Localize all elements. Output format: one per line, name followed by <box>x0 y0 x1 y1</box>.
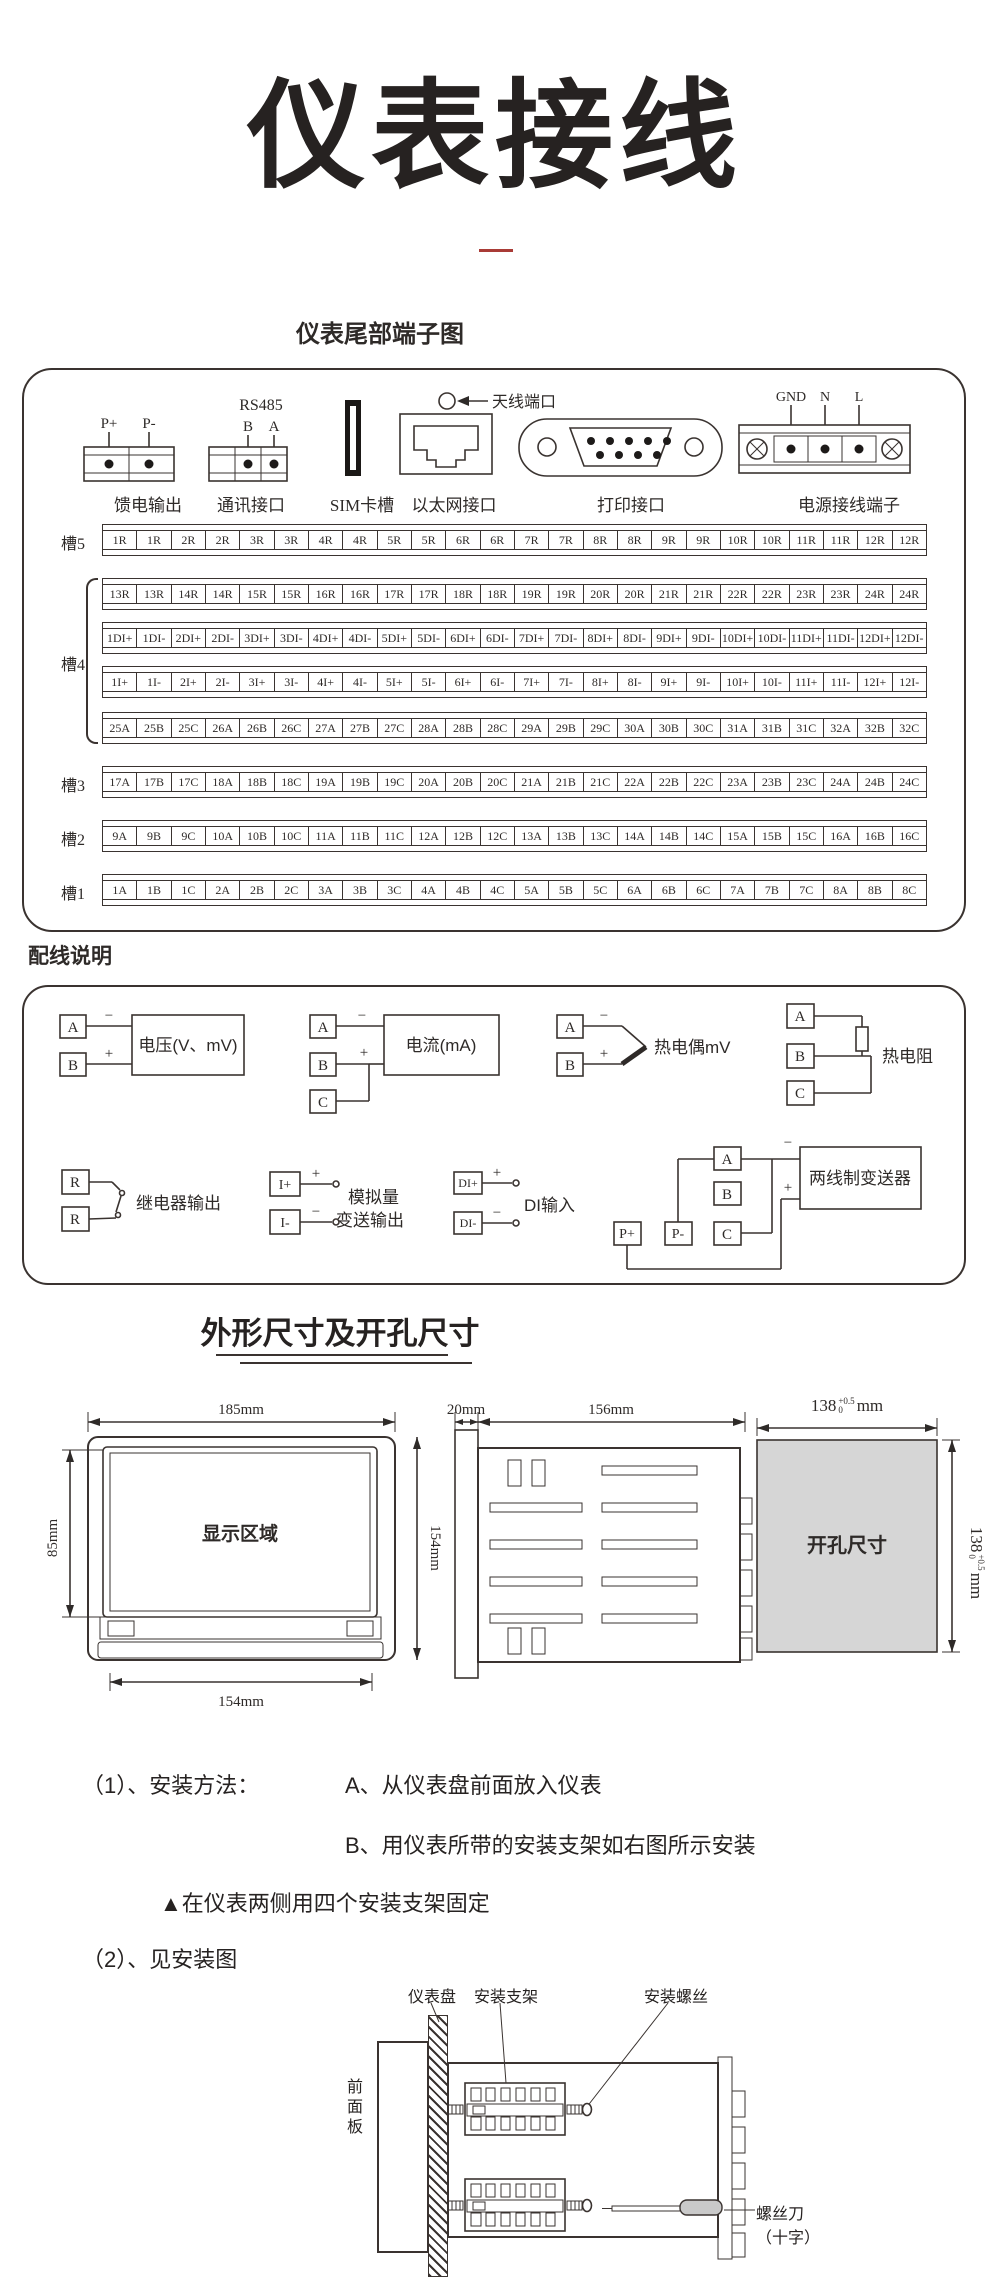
terminal-cell: 6I- <box>481 673 515 691</box>
terminal-cell: 19C <box>378 773 412 791</box>
terminal-strip: 13R13R14R14R15R15R16R16R17R17R18R18R19R1… <box>102 578 927 610</box>
cutout-label: 开孔尺寸 <box>807 1534 887 1557</box>
cutout-height-dim: 138+0.50mm <box>966 1508 986 1618</box>
terminal-r: R <box>70 1212 80 1228</box>
terminal-p-minus: P- <box>672 1227 685 1242</box>
comm-connector: RS485 B A <box>209 397 287 481</box>
terminal-cell: 4I- <box>343 673 377 691</box>
terminal-cell: 14C <box>687 827 721 845</box>
terminal-cell: 1A <box>103 881 137 899</box>
terminal-cell: 4R <box>343 531 377 549</box>
polarity-minus: − <box>312 1204 320 1220</box>
install-note: ▲在仪表两侧用四个安装支架固定 <box>160 1886 490 1918</box>
terminal-cell: 8R <box>618 531 652 549</box>
terminal-cell: 9R <box>687 531 721 549</box>
terminal-r: R <box>70 1175 80 1191</box>
terminal-cell: 31B <box>755 719 789 737</box>
wiring-analog-out: I+ I- + − 模拟量 变送输出 <box>270 1166 404 1234</box>
terminal-cell: 27B <box>343 719 377 737</box>
terminal-cell: 23R <box>824 585 858 603</box>
terminal-cell: 3DI- <box>275 629 309 647</box>
body-back-edge <box>718 2057 732 2259</box>
terminal-cell: 4DI- <box>343 629 377 647</box>
terminal-cell: 3I+ <box>240 673 274 691</box>
terminal-cell: 17B <box>137 773 171 791</box>
terminal-cell: 26C <box>275 719 309 737</box>
terminal-cell: 19R <box>515 585 549 603</box>
terminal-cell: 29C <box>584 719 618 737</box>
front-width-dim: 185mm <box>218 1402 264 1418</box>
side-depth-dim: 20mm <box>447 1402 486 1418</box>
terminal-cell: 6DI+ <box>446 629 480 647</box>
terminal-strip: 25A25B25C26A26B26C27A27B27C28A28B28C29A2… <box>102 712 927 744</box>
thermocouple-label: 热电偶mV <box>654 1038 731 1057</box>
power-pin-label: N <box>820 390 830 405</box>
wiring-voltage: A B − + 电压(V、mV) <box>60 1008 244 1076</box>
terminal-a: A <box>318 1020 329 1036</box>
terminal-cell: 3DI+ <box>240 629 274 647</box>
terminal-cell: 9DI+ <box>652 629 686 647</box>
terminal-cell: 24A <box>824 773 858 791</box>
terminal-cell: 2C <box>275 881 309 899</box>
install-drawing <box>300 1975 990 2281</box>
terminal-cell: 2A <box>206 881 240 899</box>
feed-output-connector: P+ P- <box>84 416 174 481</box>
terminal-cell: 1R <box>137 531 171 549</box>
terminal-cell: 9A <box>103 827 137 845</box>
terminal-cell: 11R <box>824 531 858 549</box>
polarity-minus: − <box>493 1205 501 1221</box>
terminal-c: C <box>318 1095 328 1111</box>
terminal-cell: 5A <box>515 881 549 899</box>
cutout-unit: mm <box>857 1396 883 1416</box>
terminal-cell: 15R <box>275 585 309 603</box>
terminal-cell: 12B <box>446 827 480 845</box>
terminal-cell: 5DI+ <box>378 629 412 647</box>
terminal-strip: 17A17B17C18A18B18C19A19B19C20A20B20C21A2… <box>102 766 927 798</box>
terminal-cell: 15B <box>755 827 789 845</box>
screwdriver-icon <box>602 2200 722 2215</box>
terminal-cell: 7A <box>721 881 755 899</box>
terminal-cell: 26B <box>240 719 274 737</box>
slot-label: 槽5 <box>50 530 96 554</box>
polarity-plus: + <box>360 1045 368 1061</box>
ethernet-port-label: 以太网接口 <box>394 491 514 513</box>
terminal-cell: 20R <box>618 585 652 603</box>
feed-pin-label: P+ <box>101 416 118 432</box>
terminal-cell: 14B <box>652 827 686 845</box>
terminal-cell: 22R <box>721 585 755 603</box>
terminal-cell: 3B <box>343 881 377 899</box>
polarity-minus: − <box>358 1008 366 1024</box>
terminal-cell: 4C <box>481 881 515 899</box>
install-step1-a: A、从仪表盘前面放入仪表 <box>345 1768 602 1800</box>
terminal-a: A <box>68 1020 79 1036</box>
terminal-cell: 21R <box>652 585 686 603</box>
cutout-width-dim: 138+0.50mm <box>790 1396 904 1416</box>
cutout-value: 138 <box>966 1527 986 1553</box>
terminal-cell: 4R <box>309 531 343 549</box>
terminal-cell: 4A <box>412 881 446 899</box>
mounting-bracket-bottom <box>448 2179 592 2231</box>
terminal-cell: 10I- <box>755 673 789 691</box>
terminal-p-plus: P+ <box>619 1227 635 1242</box>
sim-slot-icon <box>345 400 361 476</box>
terminal-cell: 4B <box>446 881 480 899</box>
terminal-cell: 17R <box>412 585 446 603</box>
polarity-minus: − <box>784 1135 792 1151</box>
terminal-cell: 12DI+ <box>858 629 892 647</box>
terminal-cell: 24B <box>858 773 892 791</box>
antenna-port-icon: 天线端口 <box>439 393 556 411</box>
terminal-cell: 5DI- <box>412 629 446 647</box>
manual-page: 仪表接线 仪表尾部端子图 P+ P- RS485 B A <box>0 0 990 2281</box>
terminal-cell: 28C <box>481 719 515 737</box>
polarity-minus: − <box>600 1008 608 1024</box>
rs485-label: RS485 <box>239 397 283 414</box>
printer-port-label: 打印接口 <box>571 491 691 513</box>
terminal-cell: 16R <box>309 585 343 603</box>
terminal-cell: 11B <box>343 827 377 845</box>
terminal-cell: 20C <box>481 773 515 791</box>
terminal-cell: 12R <box>858 531 892 549</box>
terminal-cell: 7DI+ <box>515 629 549 647</box>
slot-group-bracket <box>86 578 98 744</box>
terminal-cell: 32B <box>858 719 892 737</box>
wiring-thermocouple: A B − + 热电偶mV <box>557 1008 731 1076</box>
terminal-cell: 26A <box>206 719 240 737</box>
terminal-cell: 3R <box>275 531 309 549</box>
terminal-cell: 13R <box>137 585 171 603</box>
terminal-strip: 1DI+1DI-2DI+2DI-3DI+3DI-4DI+4DI-5DI+5DI-… <box>102 622 927 654</box>
wiring-rtd: A B C 热电阻 <box>787 1004 933 1105</box>
di-label: DI输入 <box>524 1196 575 1215</box>
power-pin-label: L <box>855 390 864 405</box>
terminal-cell: 18C <box>275 773 309 791</box>
terminal-b: B <box>722 1187 732 1203</box>
terminal-cell: 7R <box>515 531 549 549</box>
terminal-cell: 1R <box>103 531 137 549</box>
terminal-strip: 1A1B1C2A2B2C3A3B3C4A4B4C5A5B5C6A6B6C7A7B… <box>102 874 927 906</box>
terminal-cell: 27A <box>309 719 343 737</box>
terminal-cell: 32C <box>893 719 926 737</box>
transmitter-label: 两线制变送器 <box>809 1169 911 1188</box>
display-height-dim: 85mm <box>45 1519 61 1558</box>
antenna-label: 天线端口 <box>492 393 556 411</box>
terminal-cell: 7R <box>549 531 583 549</box>
terminal-cell: 32A <box>824 719 858 737</box>
terminal-cell: 9R <box>652 531 686 549</box>
terminal-cell: 24C <box>893 773 926 791</box>
terminal-cell: 18R <box>446 585 480 603</box>
terminal-cell: 7C <box>790 881 824 899</box>
terminal-cell: 13R <box>103 585 137 603</box>
terminal-cell: 22R <box>755 585 789 603</box>
terminal-cell: 9I- <box>687 673 721 691</box>
terminal-strip: 1I+1I-2I+2I-3I+3I-4I+4I-5I+5I-6I+6I-7I+7… <box>102 666 927 698</box>
printer-port-icon <box>519 419 722 476</box>
polarity-plus: + <box>105 1046 113 1062</box>
cutout-tol-plus: +0.5 <box>976 1554 985 1570</box>
terminal-cell: 6R <box>446 531 480 549</box>
slot-label: 槽3 <box>50 772 96 796</box>
terminal-cell: 18B <box>240 773 274 791</box>
terminal-cell: 7B <box>755 881 789 899</box>
current-label: 电流(mA) <box>406 1036 477 1055</box>
polarity-plus: + <box>600 1046 608 1062</box>
cutout-tol-minus: 0 <box>967 1554 976 1570</box>
terminal-cell: 2DI- <box>206 629 240 647</box>
feed-pin-label: P- <box>142 416 155 432</box>
voltage-label: 电压(V、mV) <box>138 1036 237 1055</box>
terminal-cell: 9B <box>137 827 171 845</box>
terminal-cell: 2I- <box>206 673 240 691</box>
terminal-strip: 9A9B9C10A10B10C11A11B11C12A12B12C13A13B1… <box>102 820 927 852</box>
terminal-cell: 3I- <box>275 673 309 691</box>
terminal-cell: 5B <box>549 881 583 899</box>
front-view: 185mm 显示区域 85mm 154mm 154mm <box>45 1402 443 1710</box>
terminal-box: P+ P- RS485 B A <box>22 368 966 932</box>
terminal-cell: 6DI- <box>481 629 515 647</box>
terminal-cell: 6I+ <box>446 673 480 691</box>
terminal-cell: 17C <box>172 773 206 791</box>
terminal-cell: 10C <box>275 827 309 845</box>
terminal-cell: 17A <box>103 773 137 791</box>
terminal-cell: 21C <box>584 773 618 791</box>
side-body-depth-dim: 156mm <box>588 1402 634 1418</box>
terminal-cell: 31A <box>721 719 755 737</box>
terminal-cell: 20A <box>412 773 446 791</box>
wiring-section-title: 配线说明 <box>28 940 112 970</box>
terminal-cell: 4DI+ <box>309 629 343 647</box>
polarity-plus: + <box>784 1180 792 1196</box>
rtd-label: 热电阻 <box>882 1047 933 1066</box>
power-pin-label: GND <box>776 390 806 405</box>
terminal-c: C <box>795 1086 805 1102</box>
wiring-diagrams: A B − + 电压(V、mV) A B C − + 电流(mA) <box>24 987 968 1285</box>
terminal-cell: 12R <box>893 531 926 549</box>
bracket-leader <box>500 2003 506 2083</box>
terminal-cell: 11C <box>378 827 412 845</box>
mounting-bracket-top <box>448 2083 592 2135</box>
terminal-cell: 7DI- <box>549 629 583 647</box>
terminal-cell: 11A <box>309 827 343 845</box>
terminal-cell: 21A <box>515 773 549 791</box>
power-terminal-connector: GND N L <box>739 390 910 473</box>
panel-leader <box>431 2003 439 2022</box>
terminal-cell: 15R <box>240 585 274 603</box>
terminal-cell: 6B <box>652 881 686 899</box>
terminal-cell: 21B <box>549 773 583 791</box>
terminal-cell: 12C <box>481 827 515 845</box>
terminal-cell: 2DI+ <box>172 629 206 647</box>
terminal-cell: 11I- <box>824 673 858 691</box>
relay-label: 继电器输出 <box>136 1194 221 1213</box>
terminal-cell: 23B <box>755 773 789 791</box>
terminal-a: A <box>565 1020 576 1036</box>
terminal-b: B <box>68 1058 78 1074</box>
terminal-cell: 5I+ <box>378 673 412 691</box>
terminal-cell: 1B <box>137 881 171 899</box>
mounting-screw-icon <box>583 2104 592 2116</box>
terminal-cell: 24R <box>858 585 892 603</box>
terminal-cell: 23A <box>721 773 755 791</box>
terminal-cell: 12I- <box>893 673 926 691</box>
install-step1-b: B、用仪表所带的安装支架如右图所示安装 <box>345 1828 756 1860</box>
terminal-cell: 1I+ <box>103 673 137 691</box>
terminal-cell: 22C <box>687 773 721 791</box>
cutout-tol-minus: 0 <box>838 1406 854 1415</box>
side-view: 20mm 156mm <box>447 1402 752 1678</box>
terminal-cell: 5I- <box>412 673 446 691</box>
terminal-cell: 8DI+ <box>584 629 618 647</box>
terminal-cell: 16C <box>893 827 926 845</box>
polarity-minus: − <box>105 1008 113 1024</box>
terminal-cell: 3A <box>309 881 343 899</box>
terminal-cell: 8R <box>584 531 618 549</box>
terminal-cell: 14R <box>206 585 240 603</box>
terminal-cell: 10A <box>206 827 240 845</box>
terminal-cell: 9I+ <box>652 673 686 691</box>
terminal-cell: 11I+ <box>790 673 824 691</box>
feed-output-label: 馈电输出 <box>88 491 208 513</box>
terminal-cell: 30B <box>652 719 686 737</box>
terminal-diagram-subtitle: 仪表尾部端子图 <box>0 314 760 349</box>
front-bottom-width-dim: 154mm <box>218 1694 264 1710</box>
terminal-cell: 7I+ <box>515 673 549 691</box>
terminal-cell: 29A <box>515 719 549 737</box>
terminal-cell: 2R <box>206 531 240 549</box>
front-height-dim: 154mm <box>427 1525 443 1571</box>
title-underline <box>240 1362 472 1364</box>
terminal-cell: 17R <box>378 585 412 603</box>
terminal-cell: 1I- <box>137 673 171 691</box>
terminal-cell: 25C <box>172 719 206 737</box>
terminal-cell: 1DI- <box>137 629 171 647</box>
terminal-cell: 8I- <box>618 673 652 691</box>
cutout-view: 开孔尺寸 <box>757 1418 960 1652</box>
dimension-drawings: 185mm 显示区域 85mm 154mm 154mm 20mm <box>0 1390 990 1735</box>
terminal-cell: 18A <box>206 773 240 791</box>
terminal-cell: 30C <box>687 719 721 737</box>
terminal-cell: 19R <box>549 585 583 603</box>
terminal-strip: 1R1R2R2R3R3R4R4R5R5R6R6R7R7R8R8R9R9R10R1… <box>102 524 927 556</box>
terminal-cell: 25B <box>137 719 171 737</box>
wiring-di: DI+ DI- + − DI输入 <box>454 1165 575 1234</box>
terminal-cell: 19B <box>343 773 377 791</box>
analog-out-label1: 模拟量 <box>348 1188 399 1207</box>
comm-port-label: 通讯接口 <box>191 491 311 513</box>
terminal-cell: 14R <box>172 585 206 603</box>
terminal-cell: 2B <box>240 881 274 899</box>
terminal-cell: 23C <box>790 773 824 791</box>
terminal-cell: 6C <box>687 881 721 899</box>
terminal-cell: 24R <box>893 585 926 603</box>
analog-out-label2: 变送输出 <box>336 1211 404 1230</box>
wiring-transmitter: P+ P- A B C − + 两线制变送器 <box>614 1135 921 1269</box>
terminal-cell: 11R <box>790 531 824 549</box>
cutout-value: 138 <box>811 1396 837 1416</box>
terminal-cell: 15A <box>721 827 755 845</box>
terminal-cell: 11DI- <box>824 629 858 647</box>
terminal-cell: 20R <box>584 585 618 603</box>
terminal-cell: 20B <box>446 773 480 791</box>
terminal-cell: 13C <box>584 827 618 845</box>
terminal-i-minus: I- <box>280 1216 290 1231</box>
terminal-cell: 28B <box>446 719 480 737</box>
terminal-cell: 9DI- <box>687 629 721 647</box>
terminal-cell: 2R <box>172 531 206 549</box>
install-step1-prefix: （1）、安装方法： <box>82 1768 259 1800</box>
terminal-cell: 12DI- <box>893 629 926 647</box>
terminal-cell: 15C <box>790 827 824 845</box>
terminal-c: C <box>722 1227 732 1243</box>
cutout-unit: mm <box>966 1573 986 1599</box>
title-underline <box>216 1354 448 1356</box>
page-title: 仪表接线 <box>0 40 990 211</box>
slot-label: 槽2 <box>50 826 96 850</box>
terminal-cell: 11DI+ <box>790 629 824 647</box>
terminal-cell: 10B <box>240 827 274 845</box>
terminal-cell: 22B <box>652 773 686 791</box>
terminal-cell: 19A <box>309 773 343 791</box>
terminal-cell: 27C <box>378 719 412 737</box>
terminal-cell: 2I+ <box>172 673 206 691</box>
terminal-cell: 3C <box>378 881 412 899</box>
dimensions-section-title: 外形尺寸及开孔尺寸 <box>0 1308 680 1353</box>
terminal-cell: 10I+ <box>721 673 755 691</box>
terminal-cell: 3R <box>240 531 274 549</box>
terminal-cell: 13B <box>549 827 583 845</box>
polarity-plus: + <box>312 1166 320 1182</box>
terminal-cell: 10DI+ <box>721 629 755 647</box>
terminal-b: B <box>318 1058 328 1074</box>
terminal-cell: 6R <box>481 531 515 549</box>
terminal-cell: 16A <box>824 827 858 845</box>
terminal-a: A <box>722 1152 733 1168</box>
screw-leader <box>586 2003 668 2108</box>
wiring-current: A B C − + 电流(mA) <box>310 1008 499 1113</box>
terminal-cell: 30A <box>618 719 652 737</box>
terminal-cell: 8B <box>858 881 892 899</box>
terminal-cell: 13A <box>515 827 549 845</box>
terminal-b: B <box>565 1058 575 1074</box>
wiring-relay: R R 继电器输出 <box>62 1170 221 1231</box>
terminal-cell: 7I- <box>549 673 583 691</box>
terminal-cell: 23R <box>790 585 824 603</box>
terminal-cell: 22A <box>618 773 652 791</box>
install-step2: （2）、见安装图 <box>82 1942 237 1974</box>
terminal-cell: 8DI- <box>618 629 652 647</box>
terminal-cell: 12A <box>412 827 446 845</box>
front-panel-rect <box>378 2042 428 2252</box>
terminal-cell: 8A <box>824 881 858 899</box>
terminal-di-plus: DI+ <box>458 1176 478 1190</box>
terminal-i-plus: I+ <box>279 1178 292 1193</box>
terminal-cell: 1DI+ <box>103 629 137 647</box>
terminal-cell: 29B <box>549 719 583 737</box>
terminal-cell: 1C <box>172 881 206 899</box>
terminal-cell: 18R <box>481 585 515 603</box>
terminal-cell: 16B <box>858 827 892 845</box>
terminal-cell: 31C <box>790 719 824 737</box>
terminal-di-minus: DI- <box>460 1216 477 1230</box>
terminal-cell: 5R <box>378 531 412 549</box>
terminal-a: A <box>795 1009 806 1025</box>
terminal-cell: 8C <box>893 881 926 899</box>
terminal-cell: 5R <box>412 531 446 549</box>
polarity-plus: + <box>493 1165 501 1181</box>
